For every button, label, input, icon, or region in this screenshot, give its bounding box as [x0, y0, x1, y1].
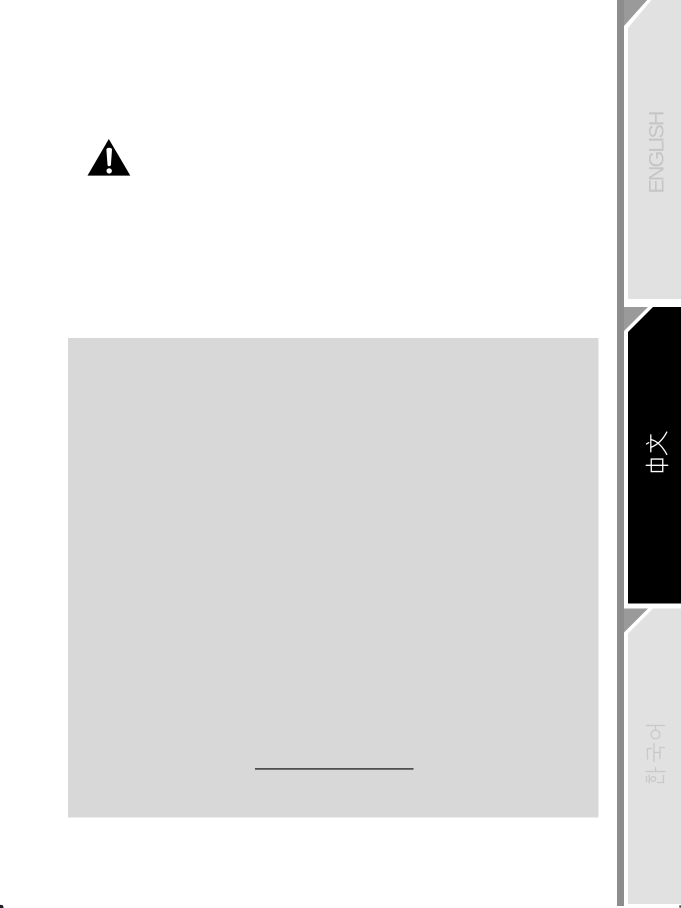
svg-text:ENGLISH: ENGLISH [644, 112, 668, 193]
